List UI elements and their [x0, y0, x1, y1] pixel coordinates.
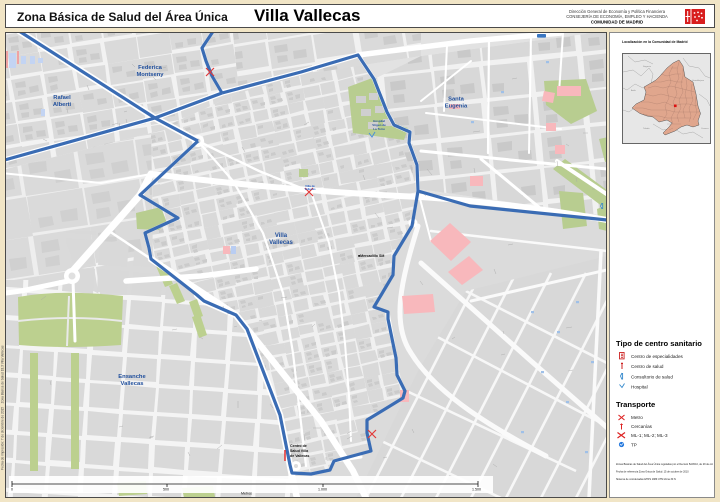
- svg-text:Salud Villa: Salud Villa: [290, 449, 309, 453]
- svg-text:1.000: 1.000: [318, 488, 327, 492]
- svg-text:de Vallecas: de Vallecas: [290, 454, 309, 458]
- svg-text:Centro de especialidades: Centro de especialidades: [631, 354, 684, 359]
- svg-text:Vallecas: Vallecas: [304, 187, 315, 191]
- svg-text:Cercanías: Cercanías: [631, 424, 653, 429]
- svg-text:Ávila: Ávila: [631, 89, 637, 92]
- svg-text:Localización en la Comunidad d: Localización en la Comunidad de Madrid: [622, 40, 688, 44]
- svg-text:Federica: Federica: [138, 65, 163, 71]
- svg-text:Centro de salud: Centro de salud: [631, 364, 664, 369]
- svg-text:■Mercadillo SM: ■Mercadillo SM: [358, 254, 384, 258]
- svg-text:Fecha de referencia Zona Única: Fecha de referencia Zona Única de Salud:…: [616, 471, 689, 474]
- svg-text:ML-1; ML-2; ML-3: ML-1; ML-2; ML-3: [631, 433, 668, 438]
- svg-text:La Torre: La Torre: [373, 127, 385, 131]
- svg-text:Villa: Villa: [275, 233, 288, 239]
- svg-text:Zonas Básicas de Salud del Áre: Zonas Básicas de Salud del Área Única re…: [616, 463, 713, 466]
- svg-text:Rafael: Rafael: [53, 95, 71, 101]
- svg-text:1.500: 1.500: [472, 488, 481, 492]
- svg-text:Toledo: Toledo: [643, 128, 650, 130]
- svg-text:Montseny: Montseny: [136, 72, 164, 78]
- svg-text:Guadalajara: Guadalajara: [692, 79, 705, 82]
- svg-text:0: 0: [11, 488, 13, 492]
- svg-text:Vallecas: Vallecas: [121, 381, 144, 387]
- svg-text:Ensanche: Ensanche: [118, 374, 146, 380]
- svg-text:Eugenia: Eugenia: [445, 104, 468, 110]
- svg-text:Santa: Santa: [448, 97, 465, 103]
- svg-text:Fecha de impresión: 7 de dicie: Fecha de impresión: 7 de diciembre de 20…: [1, 345, 5, 470]
- svg-text:Consultorio de salud: Consultorio de salud: [631, 375, 673, 380]
- svg-text:Centro de: Centro de: [290, 444, 307, 448]
- svg-text:TP: TP: [631, 443, 637, 448]
- svg-text:Hospital: Hospital: [631, 385, 648, 390]
- svg-text:Alberti: Alberti: [53, 102, 72, 108]
- svg-text:COMUNIDAD DE MADRID: COMUNIDAD DE MADRID: [591, 19, 643, 24]
- svg-text:Metros: Metros: [241, 492, 252, 496]
- svg-text:500: 500: [163, 488, 169, 492]
- svg-text:Cuenca: Cuenca: [701, 128, 709, 130]
- svg-text:Sistema de coordenadas ETRS 19: Sistema de coordenadas ETRS 1989 UTM Zon…: [616, 478, 676, 481]
- svg-text:Metro: Metro: [631, 415, 643, 420]
- svg-text:Vallecas: Vallecas: [269, 240, 293, 246]
- svg-text:Segovia: Segovia: [643, 66, 652, 68]
